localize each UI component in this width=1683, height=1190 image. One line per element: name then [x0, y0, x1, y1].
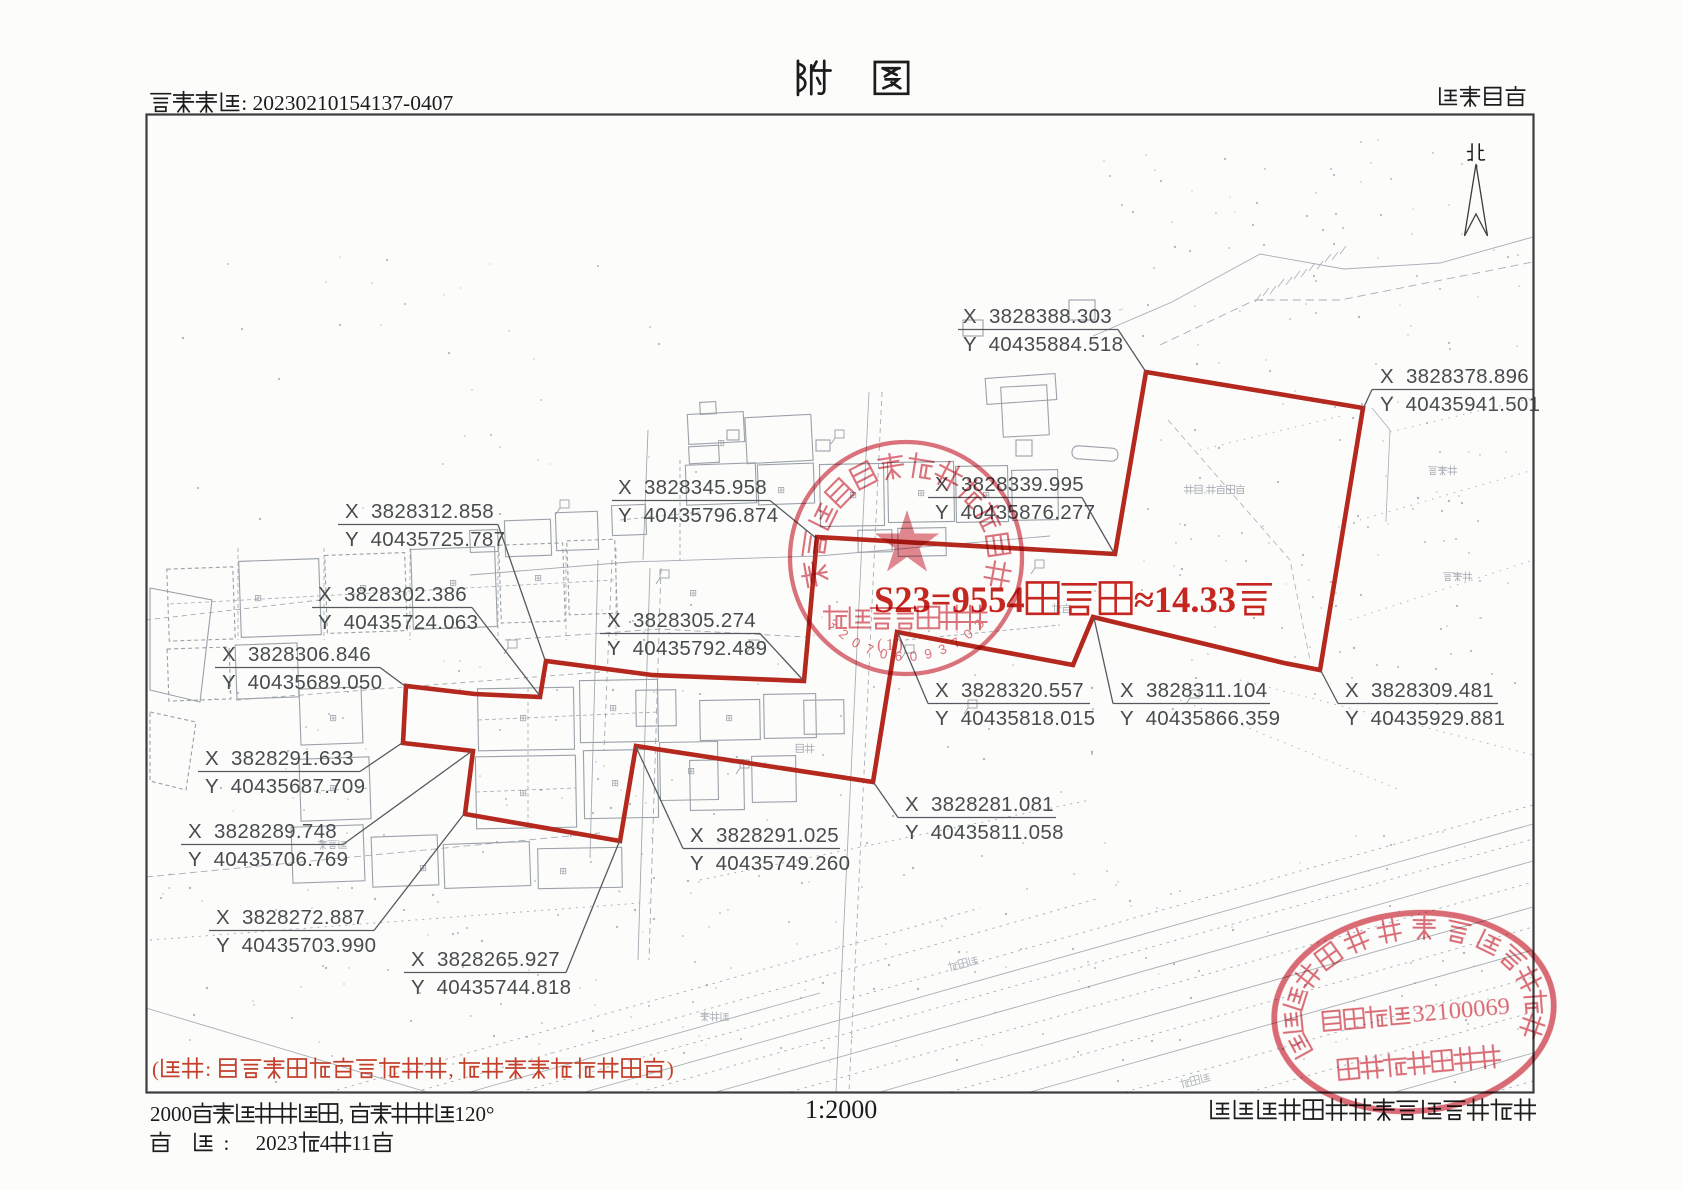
svg-text:Y 40435818.015: Y 40435818.015	[935, 707, 1095, 730]
svg-text:Y 40435724.063: Y 40435724.063	[318, 611, 478, 634]
svg-text:S23=9554: S23=9554	[874, 579, 1025, 620]
svg-text:X 3828378.896: X 3828378.896	[1380, 365, 1529, 388]
svg-text:≈14.33: ≈14.33	[1134, 579, 1236, 620]
svg-text:Y 40435687.709: Y 40435687.709	[205, 775, 365, 798]
svg-text:0: 0	[909, 648, 918, 663]
svg-text:6: 6	[894, 648, 903, 663]
svg-text:Y 40435706.769: Y 40435706.769	[188, 848, 348, 871]
svg-text:Y 40435725.787: Y 40435725.787	[345, 528, 505, 551]
svg-text:X 3828281.081: X 3828281.081	[905, 793, 1054, 816]
svg-text:Y 40435796.874: Y 40435796.874	[618, 504, 778, 527]
svg-text:Y 40435689.050: Y 40435689.050	[222, 671, 382, 694]
svg-text:,: ,	[448, 1057, 459, 1081]
svg-text:2000: 2000	[150, 1102, 192, 1126]
svg-text:X 3828345.958: X 3828345.958	[618, 476, 767, 499]
svg-text:Y 40435703.990: Y 40435703.990	[216, 934, 376, 957]
svg-text:X 3828305.274: X 3828305.274	[607, 609, 756, 632]
svg-text:Y 40435941.501: Y 40435941.501	[1380, 393, 1540, 416]
svg-text:Y 40435866.359: Y 40435866.359	[1120, 707, 1280, 730]
svg-text::: :	[205, 1057, 216, 1081]
svg-text:X 3828289.748: X 3828289.748	[188, 820, 337, 843]
svg-text:X 3828388.303: X 3828388.303	[963, 305, 1112, 328]
svg-text:X 3828320.557: X 3828320.557	[935, 679, 1084, 702]
svg-text:Y 40435749.260: Y 40435749.260	[690, 852, 850, 875]
svg-text:X 3828265.927: X 3828265.927	[411, 948, 560, 971]
svg-text:Y 40435811.058: Y 40435811.058	[905, 821, 1064, 844]
svg-text:X 3828291.025: X 3828291.025	[690, 824, 839, 847]
svg-text:120°: 120°	[455, 1102, 495, 1126]
svg-text:X 3828291.633: X 3828291.633	[205, 747, 354, 770]
svg-text:X 3828306.846: X 3828306.846	[222, 643, 371, 666]
svg-text:X 3828302.386: X 3828302.386	[318, 583, 467, 606]
svg-text:X 3828312.858: X 3828312.858	[345, 500, 494, 523]
svg-text:1:2000: 1:2000	[805, 1095, 877, 1124]
svg-text:: 2023: : 2023	[213, 1131, 298, 1155]
svg-text:Y 40435792.489: Y 40435792.489	[607, 637, 767, 660]
svg-text:Y 40435929.881: Y 40435929.881	[1345, 707, 1505, 730]
svg-text:X 3828309.481: X 3828309.481	[1345, 679, 1494, 702]
svg-text:11: 11	[351, 1131, 371, 1155]
svg-text:: 20230210154137-0407: : 20230210154137-0407	[241, 91, 453, 115]
svg-text:4: 4	[320, 1131, 331, 1155]
svg-text:(: (	[152, 1057, 159, 1081]
svg-text:Y 40435884.518: Y 40435884.518	[963, 333, 1123, 356]
svg-text:): )	[667, 1057, 674, 1081]
svg-text:Y 40435744.818: Y 40435744.818	[411, 976, 571, 999]
svg-text:X 3828311.104: X 3828311.104	[1120, 679, 1267, 702]
svg-text:,: ,	[339, 1102, 350, 1126]
svg-text:X 3828272.887: X 3828272.887	[216, 906, 365, 929]
svg-text:,: ,	[1204, 485, 1207, 496]
